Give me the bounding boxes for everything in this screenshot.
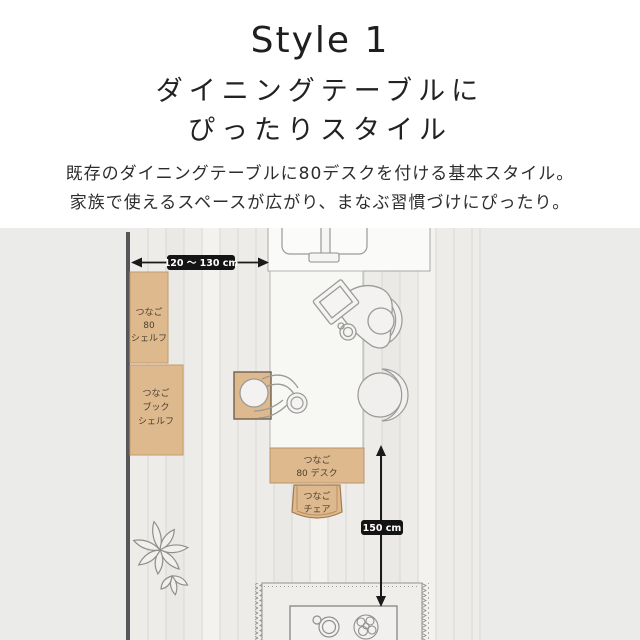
book-shelf: つなご ブック シェルフ	[130, 365, 183, 455]
kitchen-counter	[268, 228, 430, 271]
infographic: Style 1 ダイニングテーブルに ぴったりスタイル 既存のダイニングテーブル…	[0, 0, 640, 640]
heading: ダイニングテーブルに ぴったりスタイル	[0, 72, 640, 150]
cup-icon	[287, 393, 307, 413]
desk-80: つなご 80 デスク	[270, 448, 364, 483]
rug-fringe-right	[422, 583, 429, 640]
book-shelf-label-1: つなご	[142, 387, 169, 399]
page-title: Style 1	[0, 20, 640, 61]
desk-label-2: 80 デスク	[296, 467, 337, 479]
book-shelf-label-3: シェルフ	[138, 417, 174, 427]
flowers-icon	[354, 615, 378, 639]
floorplan-svg: つなご 80 シェルフ つなご ブック シェルフ つなご 80 デスク	[0, 228, 640, 640]
heading-line-2: ぴったりスタイル	[0, 111, 640, 150]
width-measure-label: 120 〜 130 cm	[164, 258, 239, 269]
rug	[255, 583, 429, 640]
heading-line-1: ダイニングテーブルに	[0, 72, 640, 111]
description-line-2: 家族で使えるスペースが広がり、まなぶ習慣づけにぴったり。	[0, 189, 640, 218]
description-line-1: 既存のダイニングテーブルに80デスクを付ける基本スタイル。	[0, 160, 640, 189]
chair-label-2: チェア	[303, 504, 330, 515]
desk-label-1: つなご	[303, 454, 330, 466]
shelf-80-label-3: シェルフ	[131, 334, 167, 344]
shelf-80: つなご 80 シェルフ	[130, 272, 168, 363]
rug-fringe-left	[255, 583, 262, 640]
height-measure-label: 150 cm	[363, 523, 402, 534]
low-table	[290, 606, 397, 640]
shelf-80-label-1: つなご	[135, 306, 162, 318]
description: 既存のダイニングテーブルに80デスクを付ける基本スタイル。 家族で使えるスペース…	[0, 160, 640, 218]
chair-label-1: つなご	[303, 490, 330, 502]
floorplan-illustration: つなご 80 シェルフ つなご ブック シェルフ つなご 80 デスク	[0, 228, 640, 640]
book-shelf-label-2: ブック	[142, 401, 169, 413]
wall	[126, 232, 130, 640]
shelf-80-label-2: 80	[143, 321, 155, 331]
chair-tsunago: つなご チェア	[292, 485, 342, 518]
